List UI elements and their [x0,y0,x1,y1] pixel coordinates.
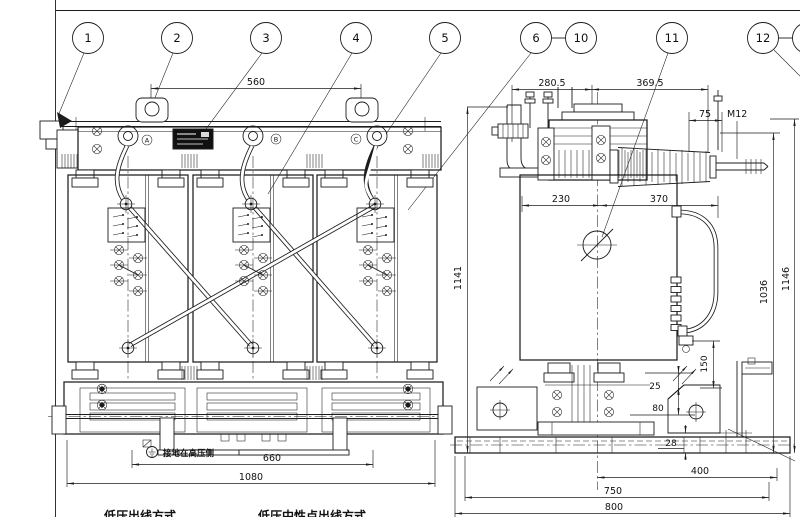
drawing-canvas: 1 2 3 4 5 6 10 11 12 560 [0,0,800,517]
balloon-13-partial [793,23,800,54]
dim-75: 75 [699,109,711,120]
dim-25: 25 [649,382,660,392]
dim-560: 560 [247,77,265,88]
lower-clamp-pads [72,362,433,380]
dim-370: 370 [650,194,668,205]
dim-28-group: 28 [658,425,692,460]
core-clamp-top [492,87,647,180]
lifting-lug-left [136,98,168,122]
thread-m12: M12 [727,109,747,120]
dim-1146: 1146 [781,267,792,291]
haul-arrows [490,366,696,384]
dim-280-5: 280.5 [538,78,565,89]
balloon-1-number: 1 [84,31,91,45]
caption-lv-neutral-outlet: 低压中性点出线方式 [257,508,366,517]
foot-pad-left [477,387,537,430]
dim-80: 80 [652,404,664,414]
dim-150: 150 [700,355,710,372]
jack-bracket-right [239,418,349,455]
grounding-symbol [143,440,158,458]
dim-800: 800 [605,502,623,513]
phase-label-b: B [274,136,278,144]
balloon-6-number: 6 [532,31,539,45]
phase-label-c: C [354,136,359,144]
body-hole-mark [577,229,617,261]
right-support-bracket [737,358,772,437]
dim-1080: 1080 [239,472,263,483]
dim-1036-group: 1036 [720,133,780,453]
balloon-11-number: 11 [665,31,680,45]
balloon-3-number: 3 [262,31,269,45]
dim-1146-group: 1146 [770,119,799,453]
dim-369-5: 369.5 [636,78,663,89]
lifting-lug-right [346,98,378,122]
dim-400-group: 400 [598,466,778,481]
dim-750-group: 750 [465,456,769,501]
dim-230: 230 [552,194,570,205]
phase-label-a: A [145,137,150,145]
bottom-clamp-side [538,363,654,435]
front-view: 560 A B C [40,77,452,517]
side-view: 280.5 369.5 75 M12 [450,78,799,517]
dim-1141: 1141 [453,266,464,290]
dim-400: 400 [691,466,709,477]
dim-660: 660 [263,453,281,464]
dim-800-group: 800 [455,456,790,517]
balloon-12-number: 12 [756,31,771,45]
nameplate [173,129,213,149]
balloon-5-number: 5 [441,31,448,45]
dim-560-group: 560 [151,77,361,100]
caption-lv-outlet: 低压出线方式 [103,508,176,517]
tie-rods [130,206,375,345]
dim-80-group: 80 [630,388,695,415]
balloon-4-number: 4 [352,31,359,45]
balloon-2-number: 2 [173,31,180,45]
transformer-outline-drawing: 1 2 3 4 5 6 10 11 12 560 [0,0,800,517]
dim-1036: 1036 [759,280,770,304]
dim-150-group: 150 [692,341,722,388]
grounding-note: 接地在高压侧 [163,448,215,459]
dim-750: 750 [604,486,622,497]
balloon-10-number: 10 [574,31,589,45]
hv-terminals: A B C [118,126,387,146]
foot-pad-right [668,385,720,433]
dim-1080-group: 1080 [67,440,435,487]
base-slot-group-middle [197,388,307,432]
dim-28: 28 [665,439,677,449]
base-channel [48,382,452,434]
